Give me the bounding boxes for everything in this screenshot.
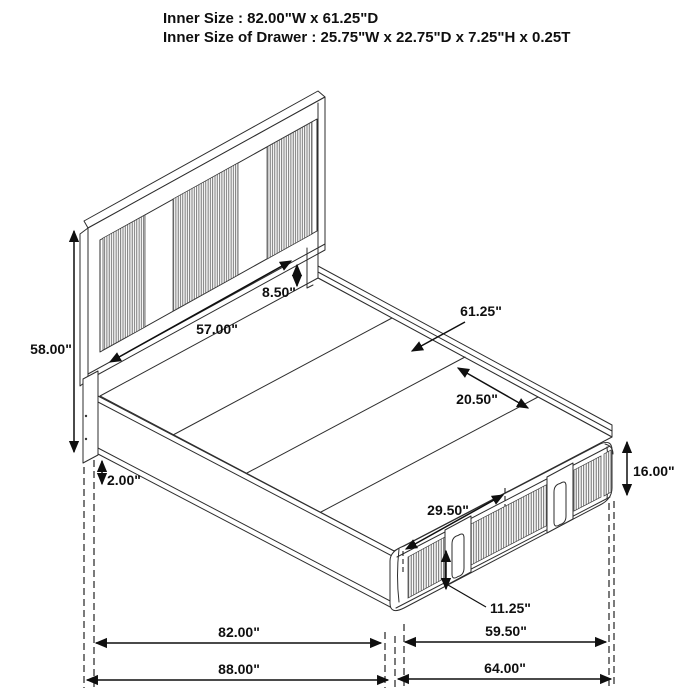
platform-depth-label: 61.25" xyxy=(460,303,502,319)
drawer-front-height-label: 11.25" xyxy=(490,600,531,616)
overall-length-label: 88.00" xyxy=(218,661,260,677)
overall-width-label: 64.00" xyxy=(484,660,526,676)
drawer-opening-width-label: 29.50" xyxy=(427,502,469,518)
title-line-2: Inner Size of Drawer : 25.75"W x 22.75"D… xyxy=(163,29,570,46)
headboard-rail-height-label: 8.50" xyxy=(262,284,296,300)
slat-spacing-label: 20.50" xyxy=(456,391,498,407)
footboard-height-label: 16.00" xyxy=(633,463,675,479)
headboard-panel-width-label: 57.00" xyxy=(196,321,238,337)
headboard-rib-panel-1 xyxy=(103,215,145,350)
drawer-front-height-leader xyxy=(448,585,486,607)
leg-peg-dot-1 xyxy=(85,415,87,417)
bed-drawing xyxy=(80,91,613,611)
title-line-1: Inner Size : 82.00"W x 61.25"D xyxy=(163,10,378,27)
footboard-inner-width-label: 59.50" xyxy=(485,623,527,639)
title-block: Inner Size : 82.00"W x 61.25"D Inner Siz… xyxy=(163,10,570,46)
bed-dimension-diagram: Inner Size : 82.00"W x 61.25"D Inner Siz… xyxy=(0,0,700,700)
leg-peg-dot-2 xyxy=(85,438,87,440)
diagram-stage: Inner Size : 82.00"W x 61.25"D Inner Siz… xyxy=(0,0,700,700)
headboard-side-edge xyxy=(80,228,88,386)
floor-clearance-label: 2.00" xyxy=(107,472,141,488)
platform-length-label: 82.00" xyxy=(218,624,260,640)
corner-post-ribs xyxy=(604,450,611,496)
headboard-height-label: 58.00" xyxy=(30,341,72,357)
headboard-left-leg xyxy=(83,371,98,463)
